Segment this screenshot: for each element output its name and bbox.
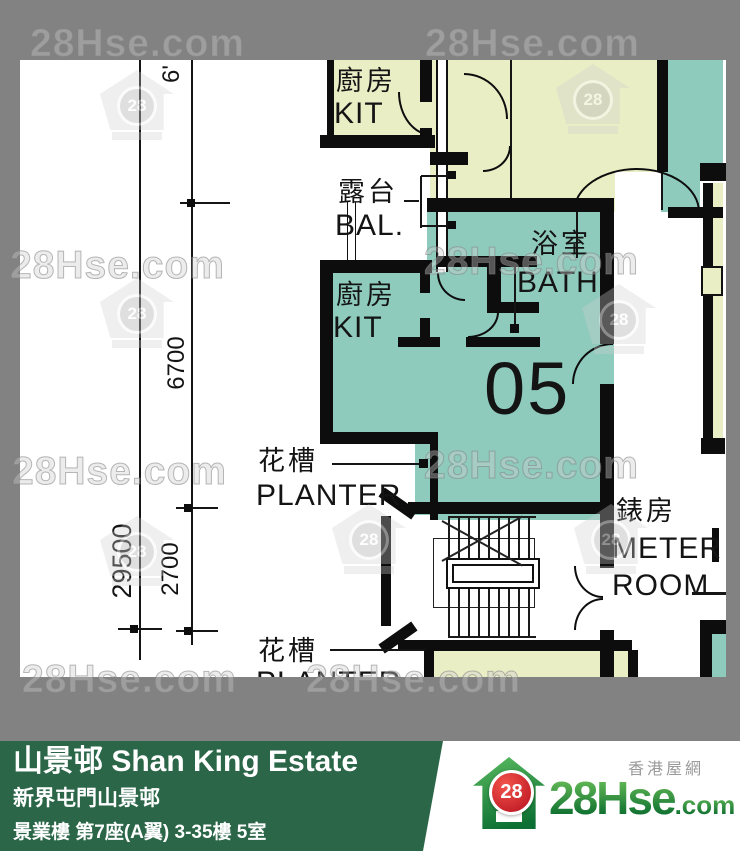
wall: [320, 135, 435, 148]
watermark-text: 28Hse.com: [22, 658, 237, 702]
bottom-right-teal: [712, 634, 726, 677]
watermark-house-icon: 28: [100, 70, 174, 140]
door-arc: [574, 598, 603, 630]
dimension-line: [191, 60, 193, 645]
label-planter-upper-zh: 花槽: [258, 448, 318, 475]
unit05-living-area: [333, 345, 614, 432]
estate-address: 新界屯門山景邨: [13, 782, 358, 812]
window-notch: [701, 266, 723, 296]
watermark-text: 28Hse.com: [425, 22, 640, 66]
label-balcony-en: BAL.: [335, 211, 404, 241]
house-base: [586, 566, 636, 574]
house-base: [112, 578, 162, 586]
wall: [327, 60, 334, 140]
floorplan-page: 6' 6700 29500 2700 廚房 KIT 露台 BAL. 浴室 BA: [0, 0, 740, 851]
badge-28-icon: 28: [117, 532, 157, 572]
badge-28-icon: 28: [117, 86, 157, 126]
badge-28-icon: 28: [349, 520, 389, 560]
wall: [657, 60, 668, 172]
house-base: [344, 566, 394, 574]
dimension-tick-dot: [184, 504, 192, 512]
badge-28-icon: 28: [117, 294, 157, 334]
right-edge-strip: [713, 183, 723, 441]
watermark-house-icon: 28: [100, 516, 174, 586]
label-kitchen-neighbor-en: KIT: [334, 99, 384, 129]
house-base: [568, 126, 618, 134]
wall: [320, 273, 333, 433]
label-kitchen-neighbor-zh: 廚房: [336, 68, 396, 95]
property-info-bar: 山景邨 Shan King Estate 新界屯門山景邨 景業樓 第7座(A翼)…: [0, 741, 740, 851]
block-floor-unit: 景業樓 第7座(A翼) 3-35樓 5室: [13, 817, 358, 844]
watermark-house-icon: 28: [582, 284, 656, 354]
wall: [628, 650, 638, 677]
wall: [430, 152, 468, 165]
wall: [700, 620, 726, 634]
logo-panel: 香港屋網 28 28Hse .com: [423, 741, 740, 851]
leader-line: [421, 225, 451, 227]
dimension-tick-dot: [130, 625, 138, 633]
label-unit-number: 05: [484, 352, 570, 426]
watermark-text: 28Hse.com: [424, 240, 639, 284]
dimension-tick: [118, 628, 162, 630]
watermark-text: 28Hse.com: [30, 22, 245, 66]
leader-line: [420, 176, 422, 228]
badge-28-icon: 28: [573, 80, 613, 120]
wall: [320, 432, 438, 444]
wall: [703, 183, 713, 441]
wall: [501, 302, 539, 313]
leader-line: [421, 175, 451, 177]
watermark-house-icon: 28: [332, 504, 406, 574]
wall: [420, 318, 430, 345]
leader-dot: [425, 645, 434, 654]
wall: [700, 163, 726, 181]
room-divider-line: [510, 60, 512, 198]
badge-28-icon: 28: [489, 770, 534, 815]
dimension-tick: [176, 507, 218, 509]
leader-line: [330, 649, 432, 651]
brand-suffix: .com: [675, 790, 736, 821]
leader-dot: [448, 221, 456, 229]
28hse-house-logo-icon: 28: [473, 757, 545, 829]
dimension-tick-dot: [184, 627, 192, 635]
house-base: [112, 340, 162, 348]
wall: [398, 337, 440, 347]
brand-name: 28Hse: [549, 771, 675, 825]
dimension-tick: [176, 630, 218, 632]
wall: [466, 337, 540, 347]
leader-dot: [510, 324, 519, 333]
watermark-text: 28Hse.com: [424, 444, 639, 488]
watermark-house-icon: 28: [100, 278, 174, 348]
label-kitchen-unit-zh: 廚房: [336, 282, 396, 309]
room-top-right: [668, 60, 723, 164]
watermark-house-icon: 28: [574, 504, 648, 574]
badge-28-icon: 28: [591, 520, 631, 560]
leader-line: [404, 200, 419, 202]
dimension-tick-dot: [187, 199, 195, 207]
badge-28-icon: 28: [599, 300, 639, 340]
watermark-house-icon: 28: [556, 64, 630, 134]
property-info-text: 山景邨 Shan King Estate 新界屯門山景邨 景業樓 第7座(A翼)…: [13, 745, 358, 851]
brand-wordmark: 28Hse .com: [549, 771, 735, 825]
label-kitchen-unit-en: KIT: [333, 313, 383, 343]
wall: [700, 634, 712, 677]
label-meter-room-en2: ROOM: [612, 571, 709, 601]
wall: [600, 630, 614, 677]
estate-title: 山景邨 Shan King Estate: [13, 745, 358, 778]
house-base: [112, 132, 162, 140]
wall: [320, 260, 432, 273]
leader-line: [332, 463, 424, 465]
watermark-text: 28Hse.com: [306, 658, 521, 702]
house-base: [594, 346, 644, 354]
label-balcony-zh: 露台: [338, 179, 398, 206]
leader-dot: [448, 171, 456, 179]
wall: [701, 438, 725, 454]
watermark-text: 28Hse.com: [12, 450, 227, 494]
